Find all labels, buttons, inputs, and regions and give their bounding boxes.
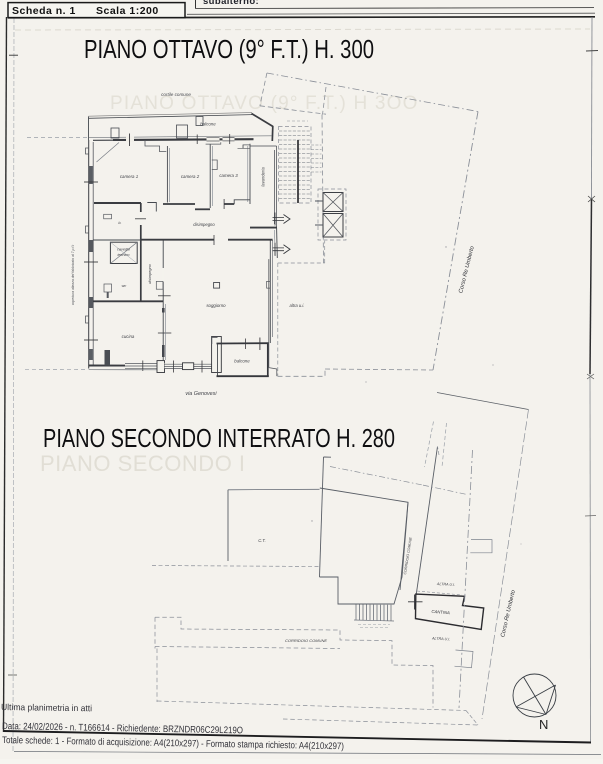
svg-text:disimpegno: disimpegno (193, 222, 215, 227)
svg-text:PIANO OTTAVO (9° F.T.) H 3OO: PIANO OTTAVO (9° F.T.) H 3OO (110, 93, 419, 114)
svg-text:balcone: balcone (234, 359, 250, 364)
svg-text:altra u.i.: altra u.i. (290, 303, 305, 308)
svg-text:cavedio: cavedio (117, 248, 130, 252)
svg-text:CORRIDOIO COMUNE: CORRIDOIO COMUNE (285, 638, 327, 643)
svg-text:subalterno:: subalterno: (203, 0, 259, 7)
svg-text:C.T.: C.T. (258, 538, 266, 543)
svg-text:cortile comune: cortile comune (161, 92, 191, 97)
svg-text:Scheda n. 1: Scheda n. 1 (12, 5, 76, 17)
svg-text:copertura altezza del fabbrica: copertura altezza del fabbricato al 7 p.… (71, 244, 75, 305)
svg-text:cucina: cucina (122, 334, 135, 339)
svg-text:Scala 1:200: Scala 1:200 (96, 5, 159, 17)
svg-text:wc: wc (122, 284, 127, 288)
svg-text:camera 2: camera 2 (181, 174, 200, 179)
svg-text:lavanderia: lavanderia (261, 167, 266, 187)
svg-text:N: N (539, 717, 548, 732)
svg-text:PIANO OTTAVO (9° F.T.) H. 300: PIANO OTTAVO (9° F.T.) H. 300 (84, 36, 374, 64)
svg-text:camera 3: camera 3 (219, 173, 238, 178)
svg-text:b.: b. (118, 221, 121, 225)
svg-text:via Genovesi: via Genovesi (185, 391, 217, 397)
svg-text:camera 1: camera 1 (120, 174, 139, 179)
svg-text:PIANO SECONDO INTERRATO H. 280: PIANO SECONDO INTERRATO H. 280 (43, 425, 395, 453)
svg-text:tecnico: tecnico (117, 253, 129, 257)
svg-text:PIANO SECONDO I: PIANO SECONDO I (40, 451, 318, 476)
svg-text:soggiorno: soggiorno (206, 303, 226, 308)
svg-text:Ultima planimetria in atti: Ultima planimetria in atti (1, 702, 92, 713)
svg-text:disimpegno: disimpegno (148, 264, 152, 283)
